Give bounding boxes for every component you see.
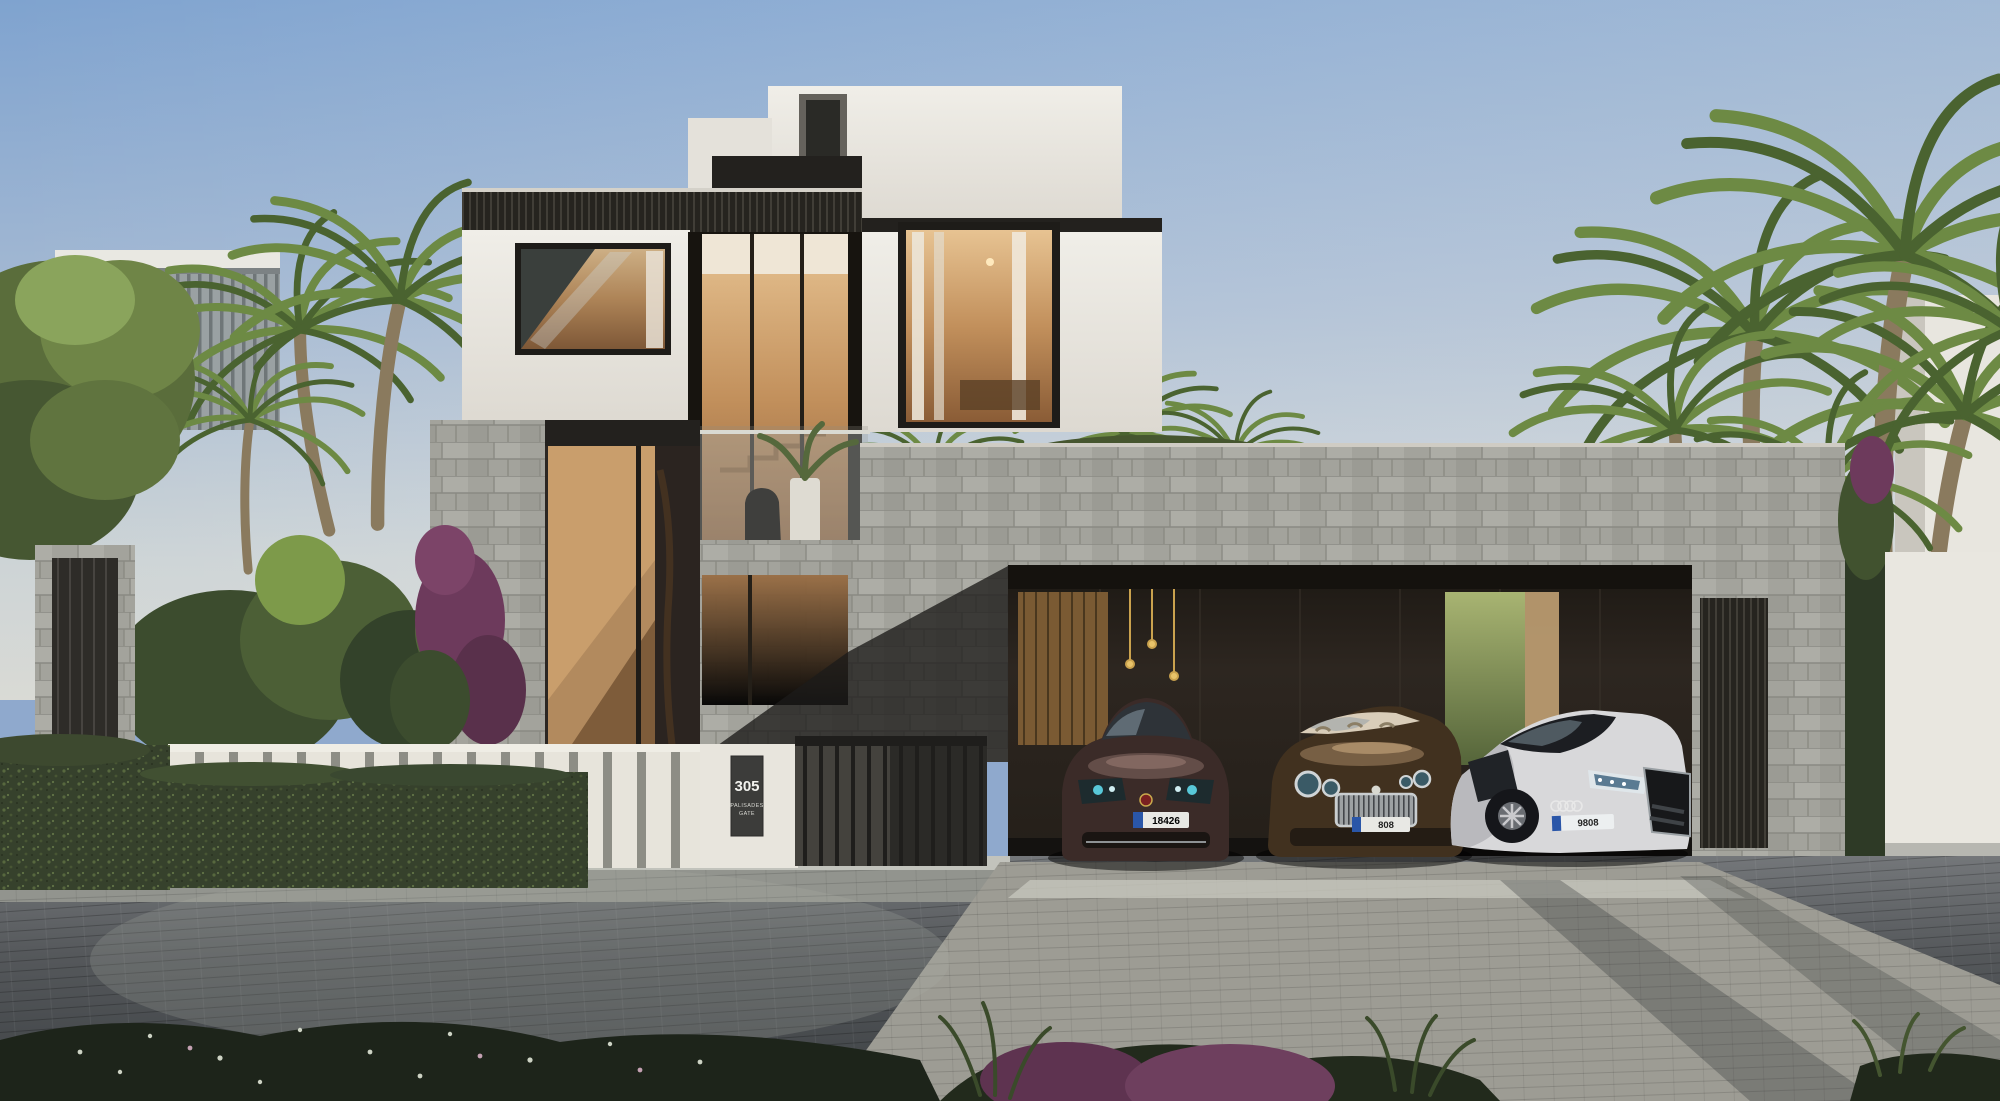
driveway-ramp-edge xyxy=(1008,880,1745,898)
svg-text:9808: 9808 xyxy=(1577,817,1599,829)
community-name-line1: PALISADES xyxy=(730,803,763,809)
right-wing xyxy=(862,222,1162,432)
cars: 18426 808 xyxy=(1048,698,1691,871)
address-plaque: 305 PALISADES GATE xyxy=(730,756,763,836)
svg-text:808: 808 xyxy=(1378,820,1394,831)
supercar-plate: 9808 xyxy=(1552,814,1614,831)
louvered-parapet xyxy=(462,188,862,232)
garage-header-band xyxy=(860,445,1845,565)
left-wing xyxy=(462,230,690,426)
house-number: 305 xyxy=(734,778,759,795)
gt-plate: 808 xyxy=(1352,817,1410,832)
sedan-plate: 18426 xyxy=(1133,812,1189,828)
scene-canvas: 18426 808 xyxy=(0,0,2000,1101)
svg-text:18426: 18426 xyxy=(1152,816,1180,827)
community-name-line2: GATE xyxy=(739,811,755,817)
entry-gate xyxy=(795,736,987,866)
villa-exterior-render: 18426 808 xyxy=(0,0,2000,1101)
left-garden-gate xyxy=(35,545,135,755)
sedan-badge xyxy=(1140,794,1152,806)
entrance xyxy=(545,420,700,762)
louver-screen xyxy=(1700,598,1768,848)
gt-badge xyxy=(1372,786,1381,795)
gold-screen xyxy=(1018,592,1108,745)
entrance-door-frame xyxy=(636,446,641,762)
